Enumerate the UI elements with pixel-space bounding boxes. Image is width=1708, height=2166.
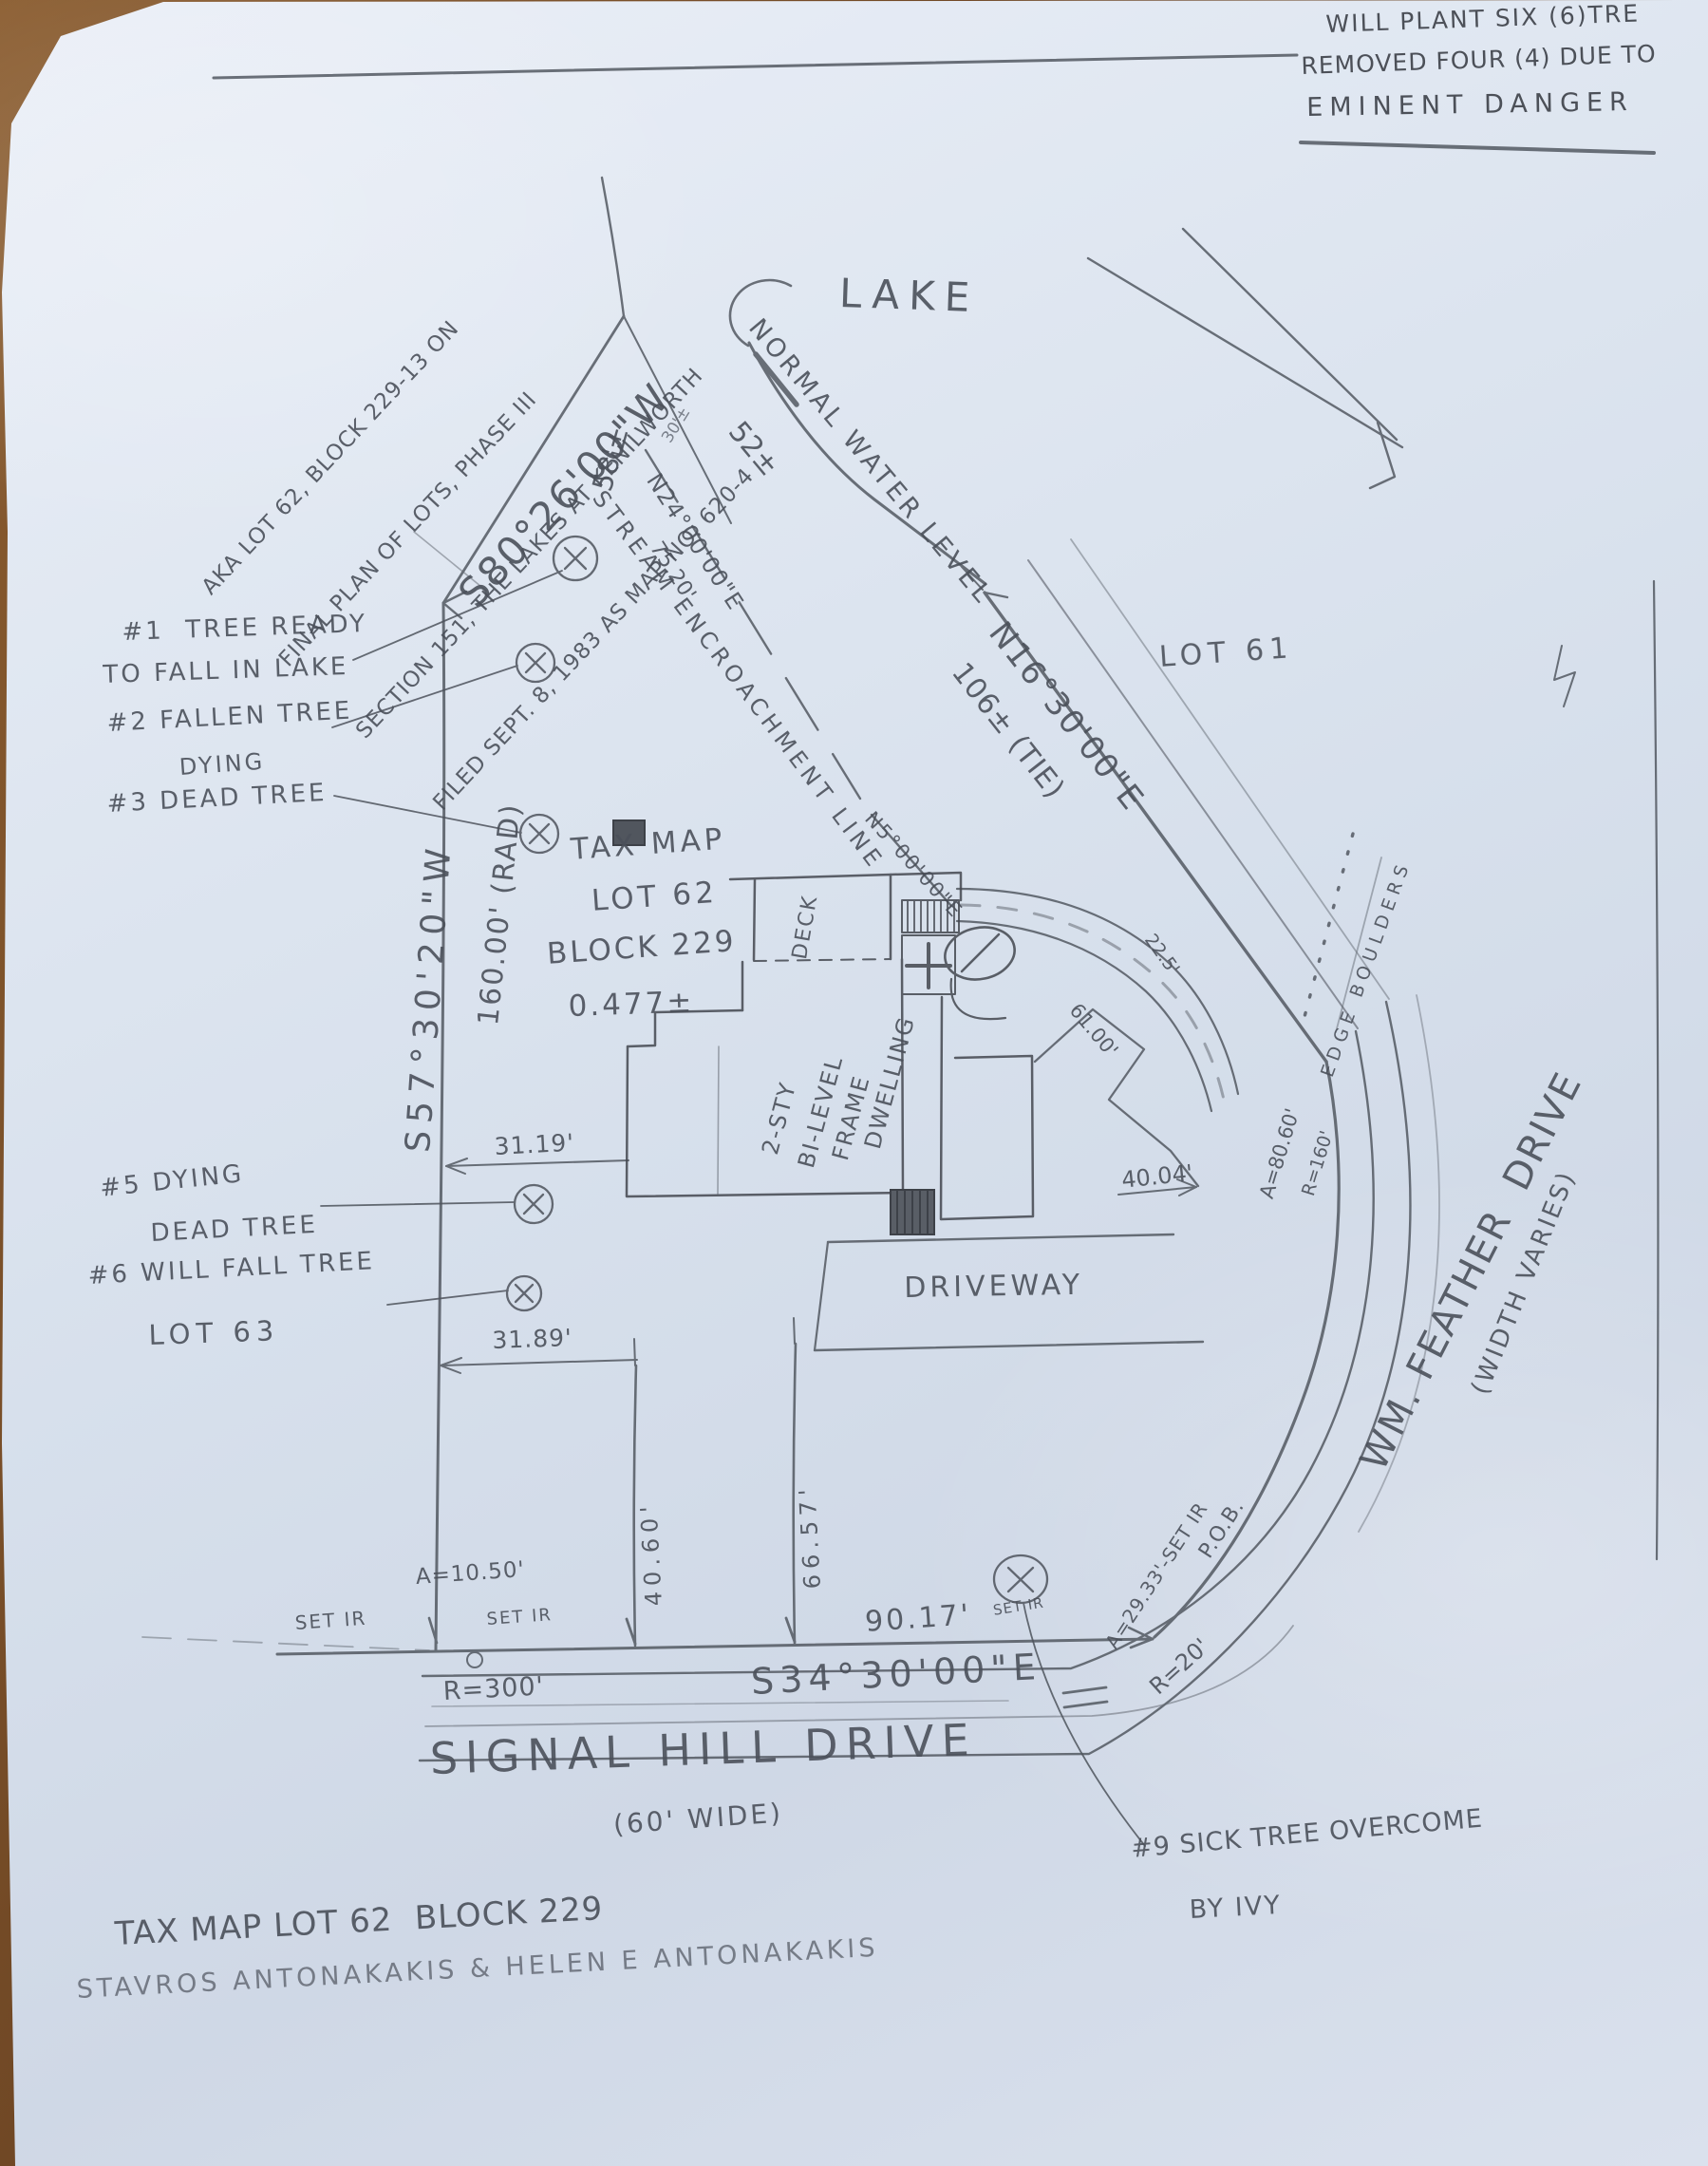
north-arrow xyxy=(1088,229,1402,488)
photographed-survey-sketch: WILL PLANT SIX (6)TRE REMOVED FOUR (4) D… xyxy=(0,0,1708,2166)
note-eminent-danger: EMINENT DANGER xyxy=(1306,87,1634,122)
lot63-label: LOT 63 xyxy=(148,1315,280,1351)
subject-taxmap-line4: 0.477± xyxy=(568,986,695,1024)
dim-3189: 31.89' xyxy=(492,1325,572,1355)
break-mark xyxy=(1554,646,1575,706)
deck-edge-dashed xyxy=(754,959,891,961)
road-edge xyxy=(422,1031,1374,1676)
road-edge xyxy=(420,1002,1410,1761)
leader-line xyxy=(387,1290,508,1305)
retaining-wall xyxy=(1035,1009,1198,1186)
tree9-note-line2: BY IVY xyxy=(1189,1891,1283,1925)
lake-label: LAKE xyxy=(838,271,980,321)
dim-3119: 31.19' xyxy=(494,1130,575,1161)
plus-mark xyxy=(907,944,950,988)
dim-6657: 66.57' xyxy=(795,1482,826,1590)
driveway-label: DRIVEWAY xyxy=(904,1270,1083,1306)
dim-4060: 40.60' xyxy=(636,1499,667,1607)
walkway xyxy=(957,889,1238,1111)
leader-line xyxy=(321,1202,515,1206)
dwelling-outline xyxy=(627,873,1033,1219)
monument-circle xyxy=(467,1652,482,1667)
dim-r300: R=300' xyxy=(442,1671,545,1706)
